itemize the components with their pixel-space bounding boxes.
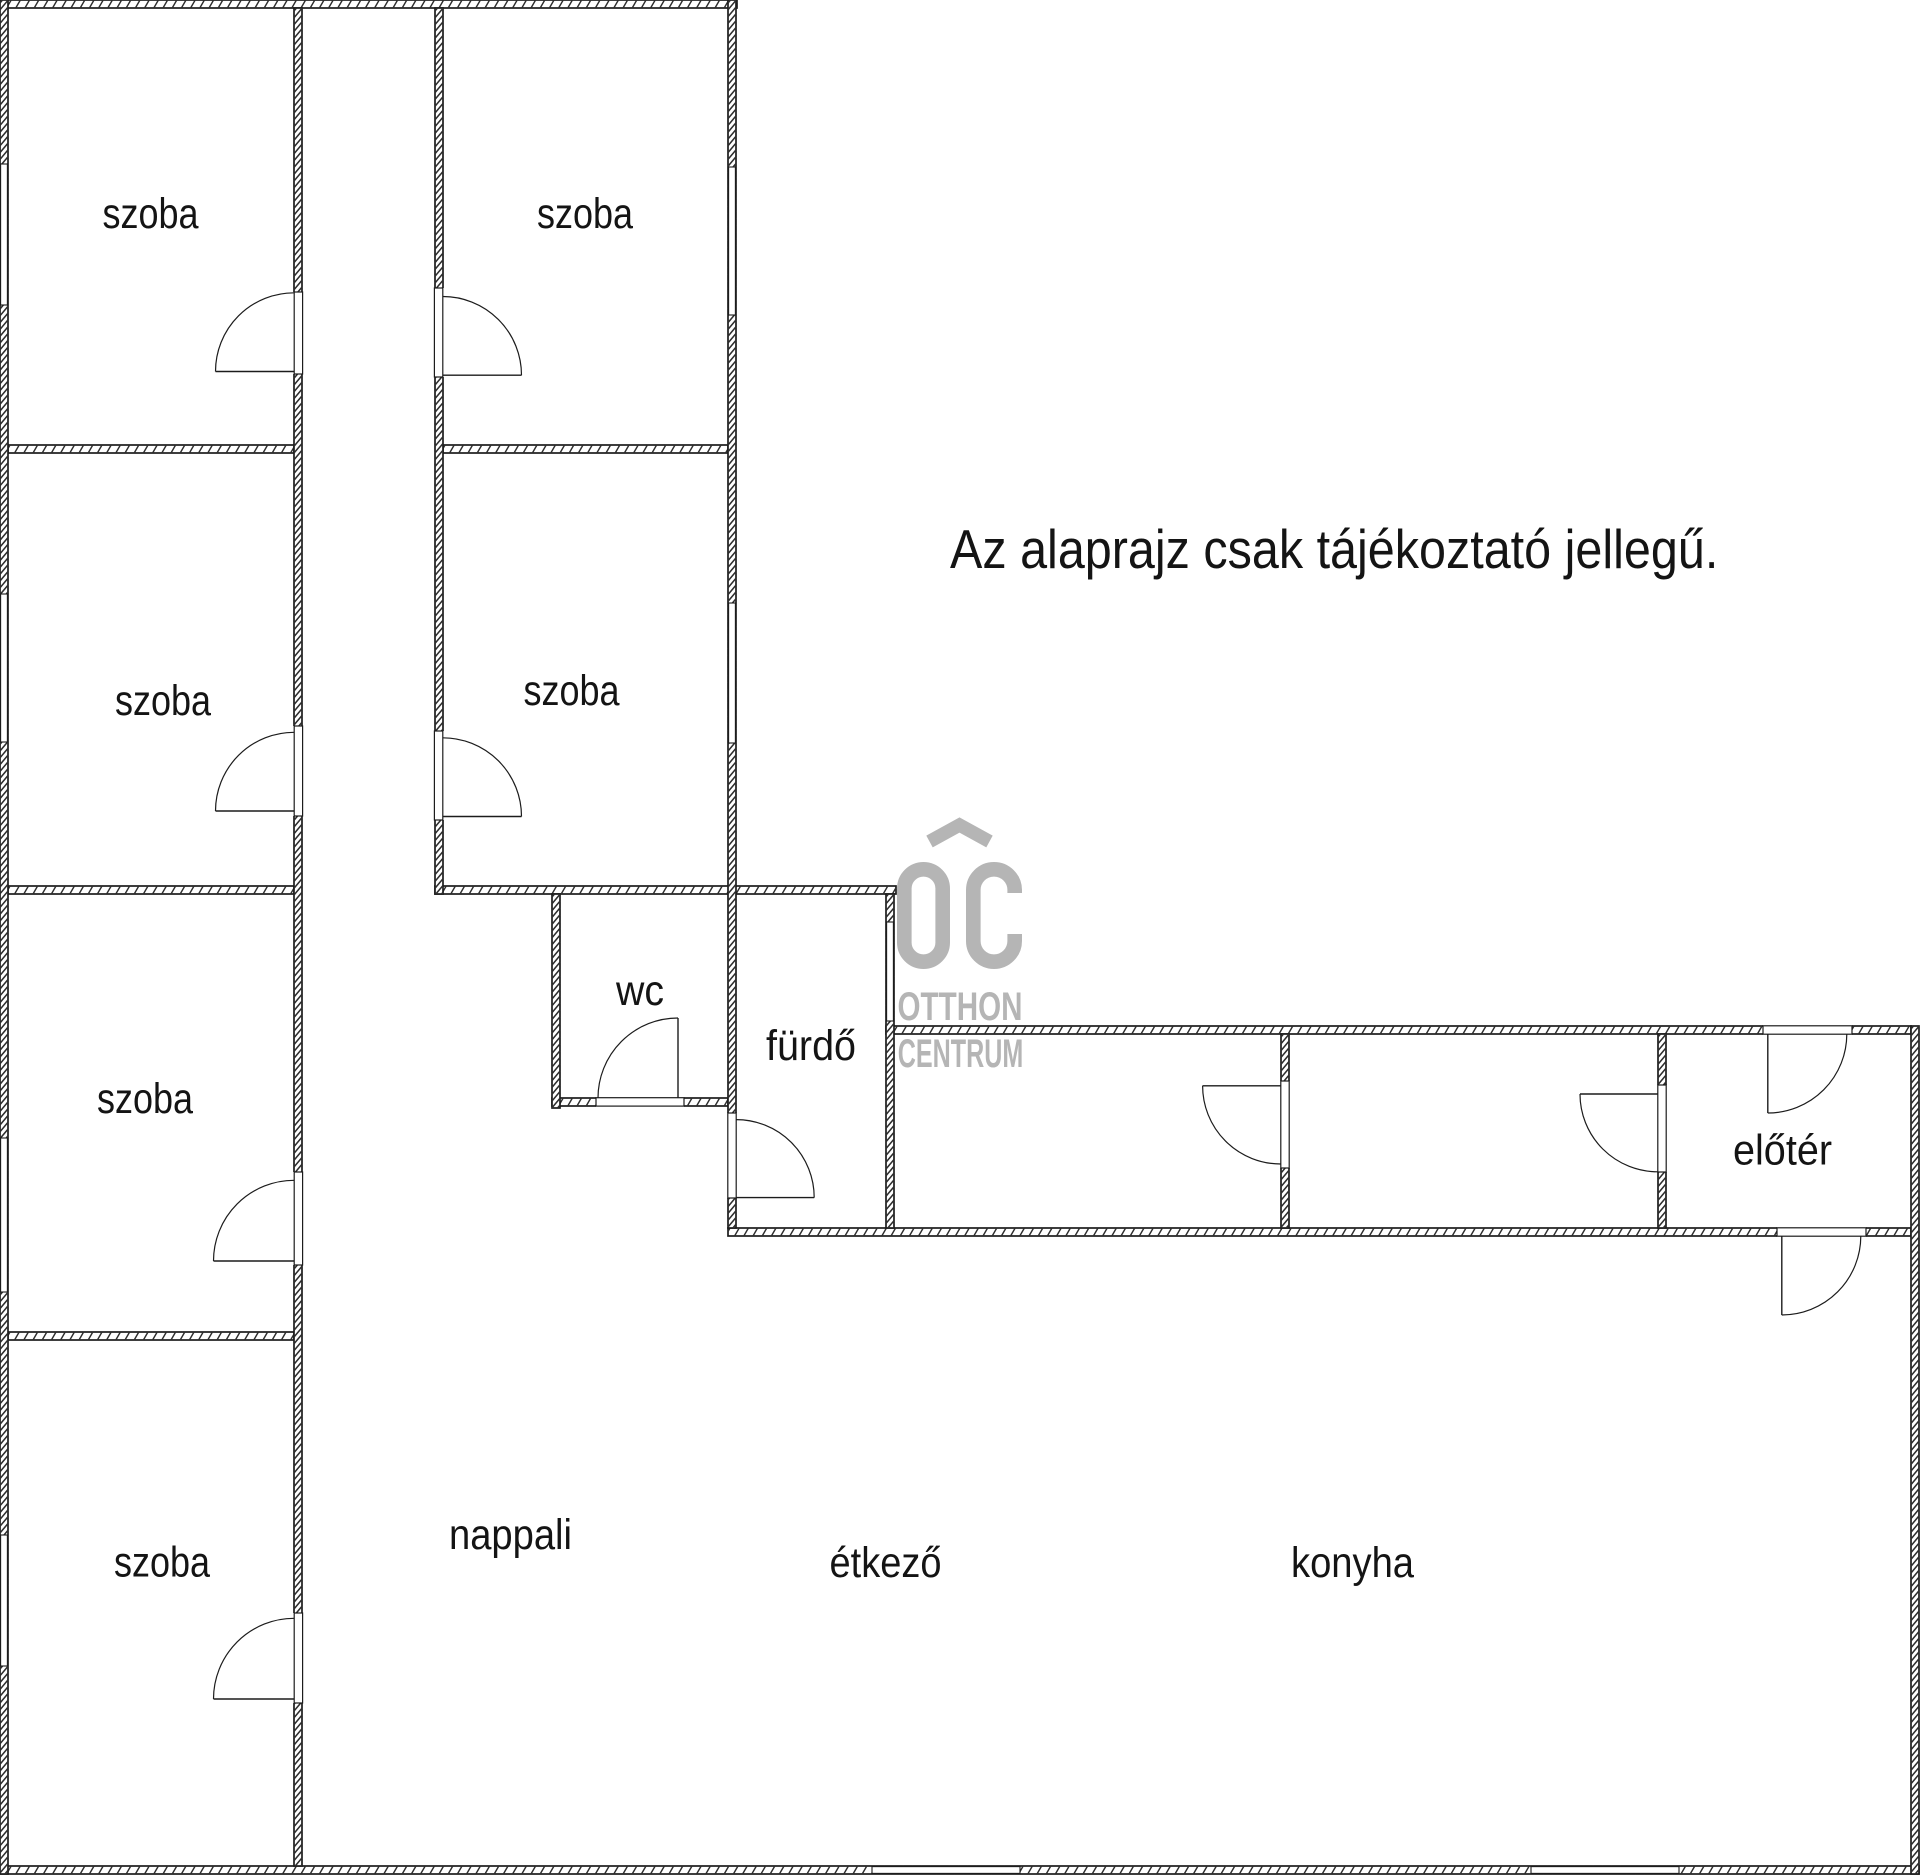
svg-text:szoba: szoba bbox=[537, 190, 633, 237]
svg-text:szoba: szoba bbox=[114, 1539, 210, 1586]
svg-text:szoba: szoba bbox=[97, 1075, 193, 1122]
svg-text:szoba: szoba bbox=[523, 667, 619, 714]
svg-text:CENTRUM: CENTRUM bbox=[898, 1032, 1023, 1076]
svg-text:OTTHON: OTTHON bbox=[898, 985, 1023, 1029]
svg-text:szoba: szoba bbox=[115, 677, 211, 724]
svg-text:étkező: étkező bbox=[829, 1539, 941, 1586]
svg-text:konyha: konyha bbox=[1291, 1539, 1415, 1586]
svg-text:wc: wc bbox=[615, 967, 664, 1015]
svg-text:nappali: nappali bbox=[449, 1511, 572, 1558]
svg-text:szoba: szoba bbox=[102, 190, 198, 237]
svg-text:Az alaprajz csak tájékoztató j: Az alaprajz csak tájékoztató jellegű. bbox=[950, 518, 1718, 580]
svg-text:fürdő: fürdő bbox=[766, 1022, 856, 1070]
svg-text:előtér: előtér bbox=[1733, 1126, 1832, 1173]
